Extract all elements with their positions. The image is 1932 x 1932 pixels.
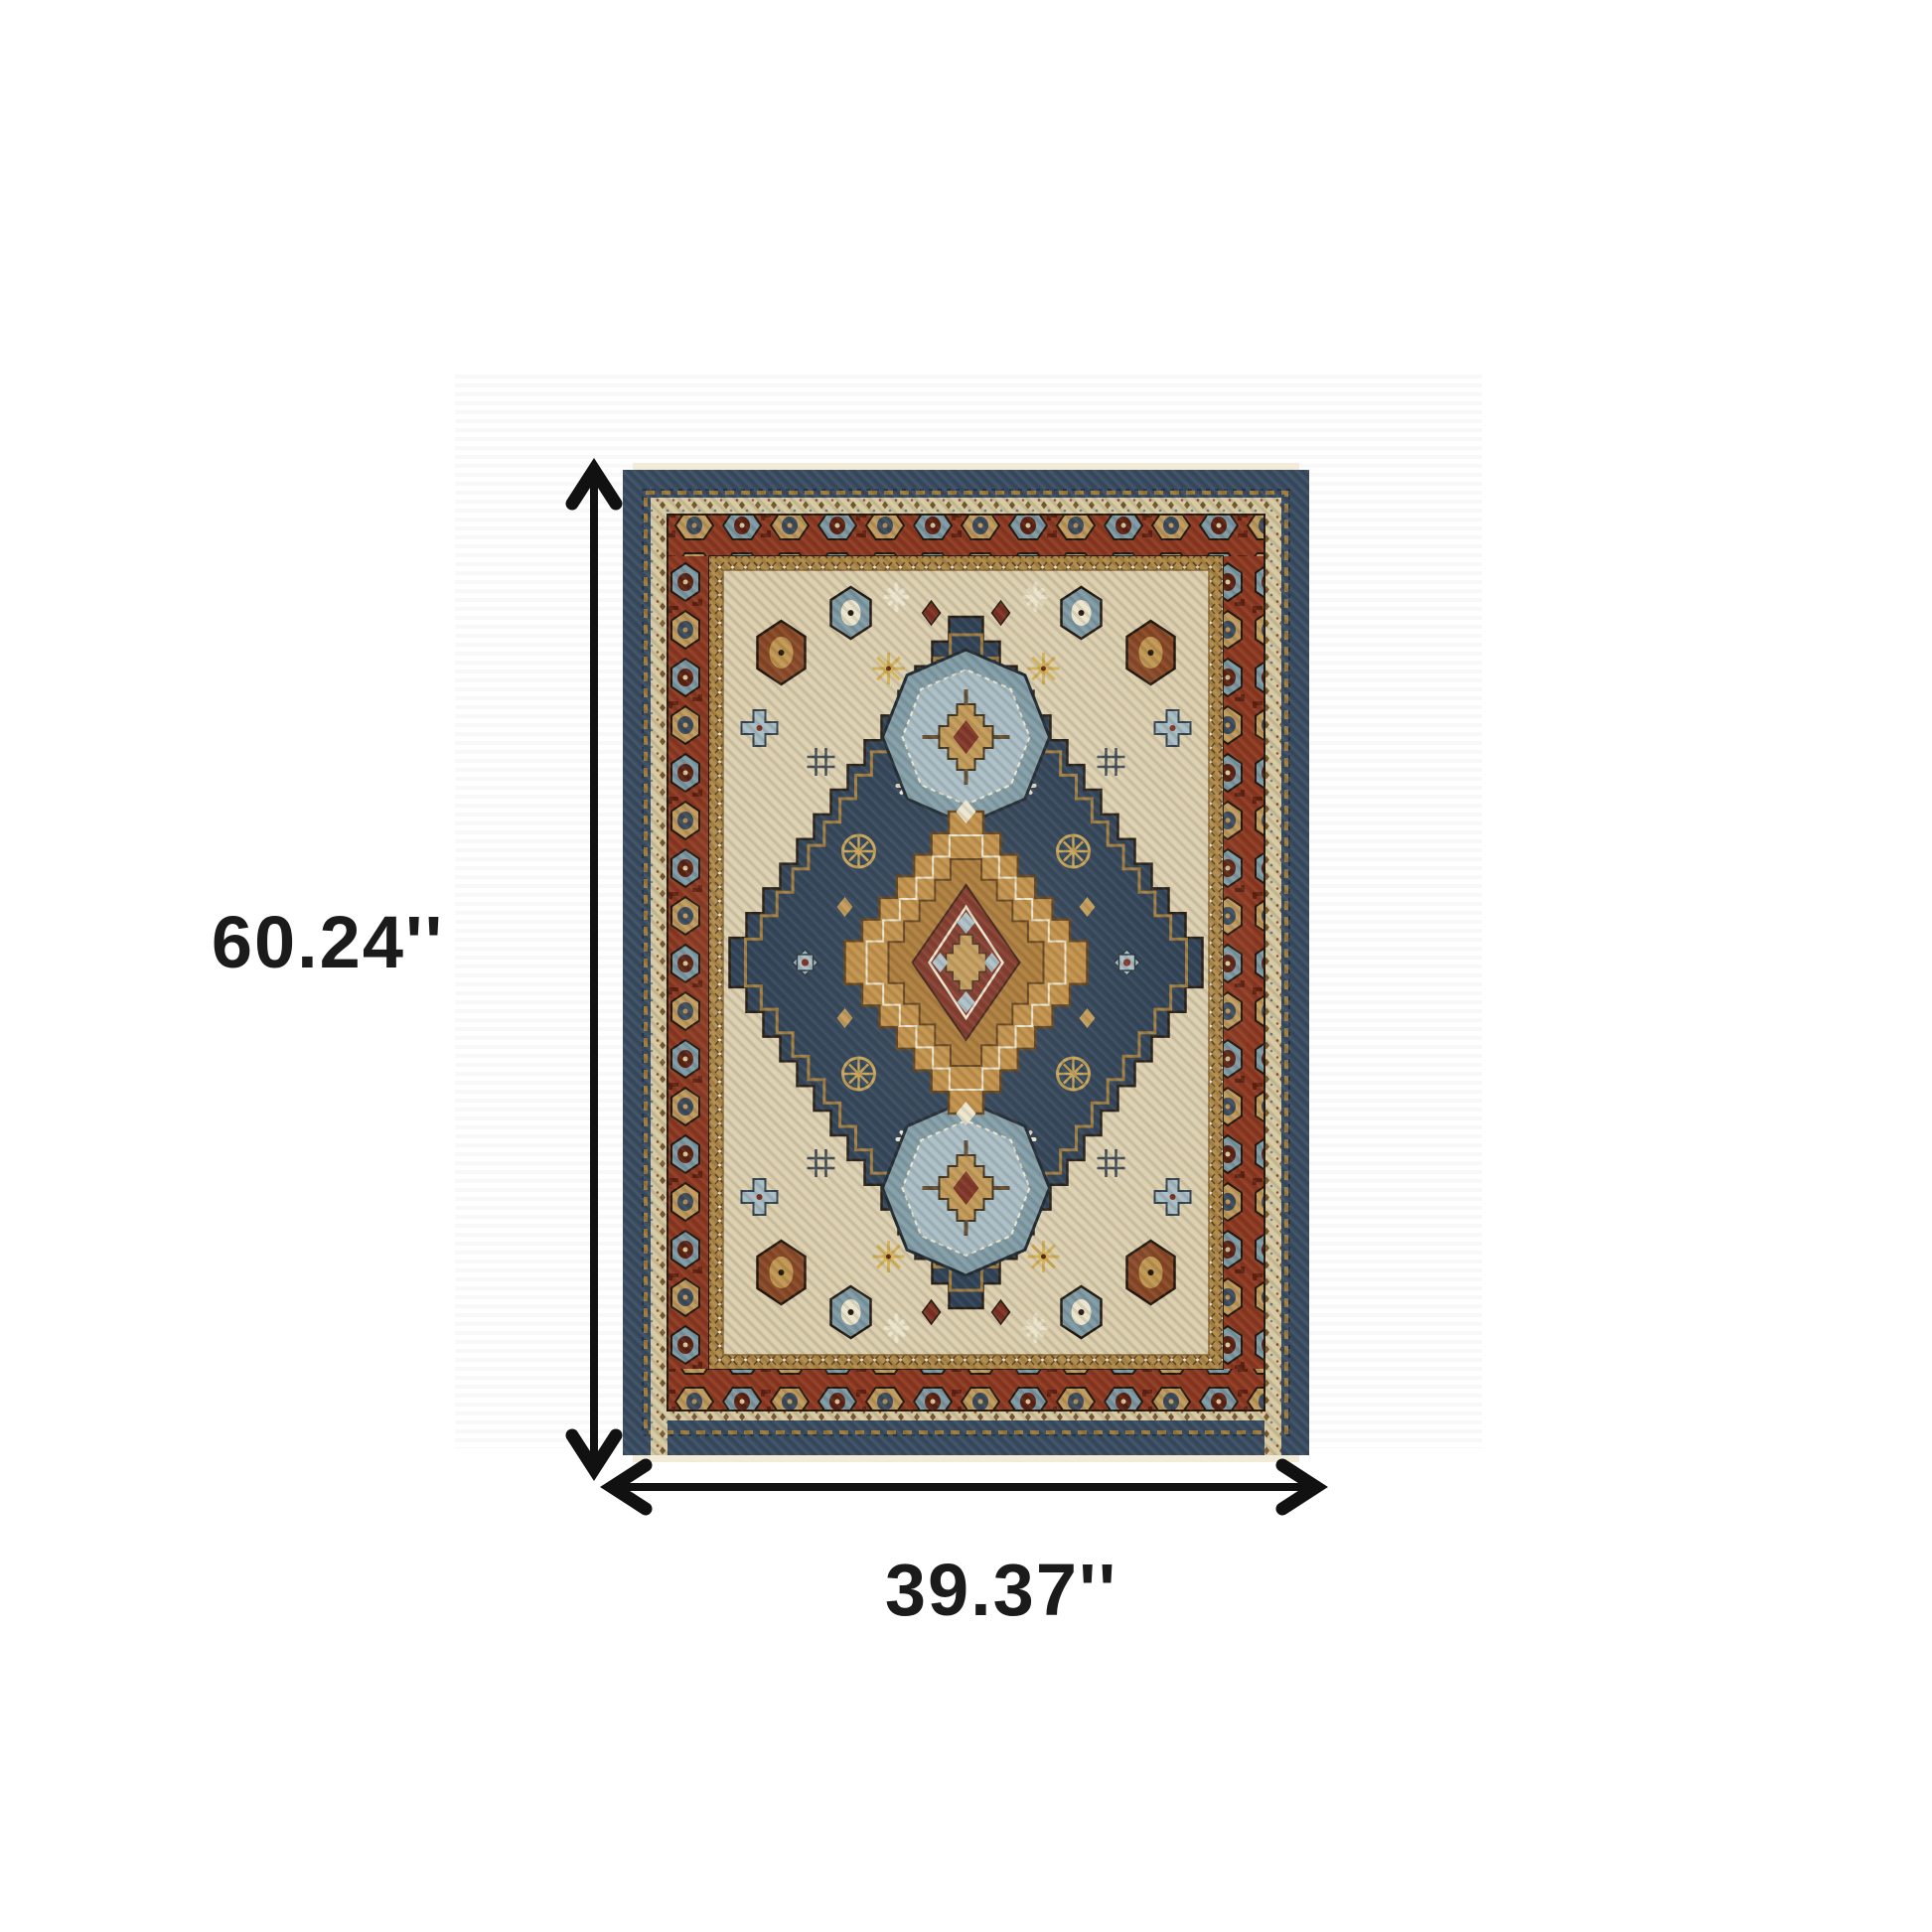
height-dimension-label: 60.24'' xyxy=(139,902,517,982)
arrow-left-icon xyxy=(612,1465,646,1509)
arrow-right-icon xyxy=(1282,1465,1316,1509)
rug-image xyxy=(623,463,1309,1462)
width-dimension-arrow xyxy=(612,1465,1316,1509)
width-dimension-label: 39.37'' xyxy=(813,1550,1190,1630)
product-dimension-diagram: 60.24'' 39.37'' xyxy=(0,0,1932,1932)
